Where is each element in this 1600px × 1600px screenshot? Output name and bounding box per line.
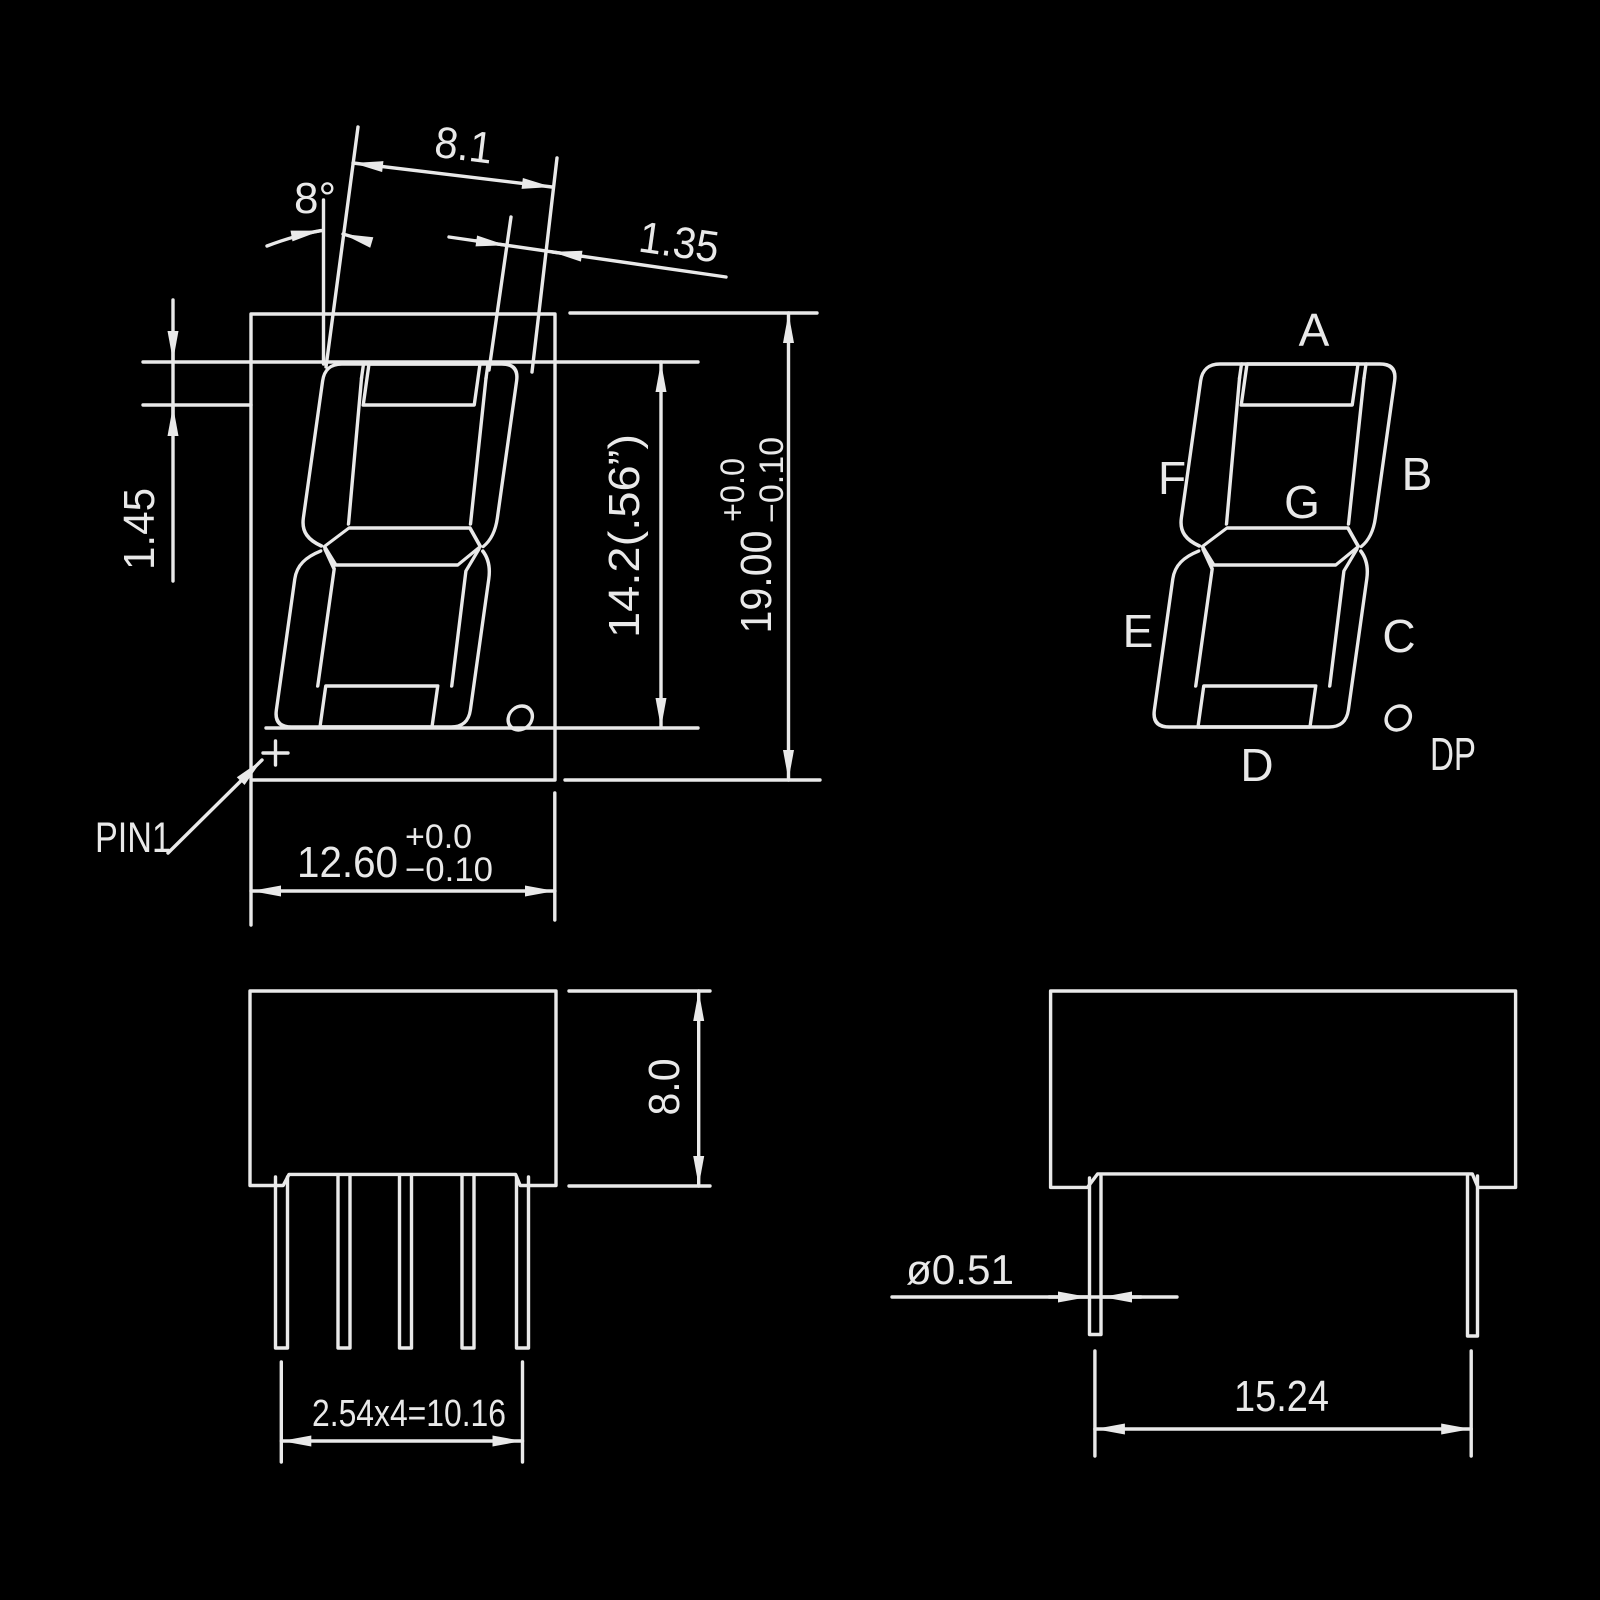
svg-text:12.60: 12.60	[297, 838, 398, 887]
svg-text:−0.10: −0.10	[405, 851, 493, 889]
svg-text:E: E	[1123, 605, 1154, 657]
svg-text:8.1: 8.1	[432, 118, 496, 174]
svg-text:G: G	[1284, 476, 1320, 528]
svg-text:C: C	[1382, 610, 1415, 662]
svg-text:14.2(.56”): 14.2(.56”)	[600, 434, 649, 638]
svg-text:+0.0: +0.0	[714, 458, 752, 522]
svg-text:PIN1: PIN1	[95, 814, 171, 862]
svg-text:A: A	[1299, 304, 1330, 356]
svg-text:1.45: 1.45	[115, 488, 164, 570]
svg-text:B: B	[1402, 448, 1433, 500]
svg-text:ø0.51: ø0.51	[906, 1246, 1014, 1293]
svg-text:−0.10: −0.10	[753, 437, 791, 523]
svg-text:F: F	[1158, 452, 1186, 504]
svg-text:19.00: 19.00	[732, 531, 781, 634]
svg-text:15.24: 15.24	[1234, 1372, 1329, 1421]
svg-text:8°: 8°	[294, 174, 336, 223]
svg-text:DP: DP	[1430, 728, 1476, 780]
svg-text:2.54x4=10.16: 2.54x4=10.16	[312, 1393, 506, 1435]
svg-text:8.0: 8.0	[640, 1059, 689, 1116]
svg-text:D: D	[1240, 739, 1273, 791]
